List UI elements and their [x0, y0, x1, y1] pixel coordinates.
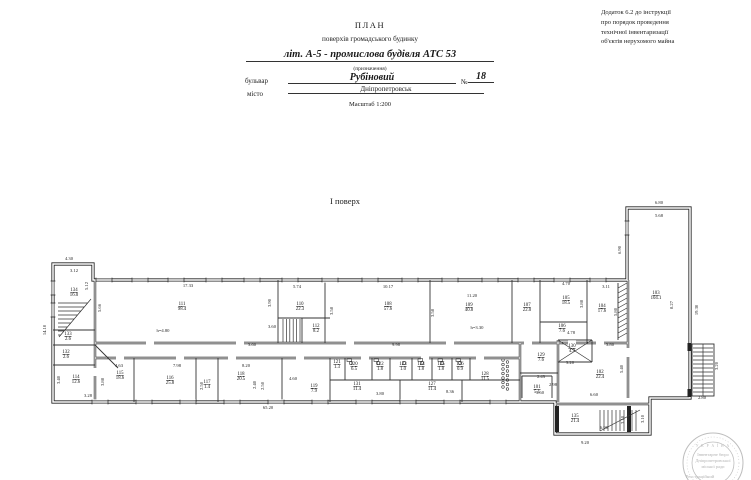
plan-dimension-label: 3.88	[579, 299, 584, 308]
window	[400, 399, 416, 404]
plan-dimension-label: 9.98	[392, 342, 401, 347]
plan-dimension-label: 5.66	[97, 303, 102, 312]
room-number-area-label: 103104.1	[651, 291, 662, 301]
stamp-footer: Реєстраційний	[686, 474, 715, 479]
shaft-circles	[506, 370, 509, 373]
window	[356, 399, 372, 404]
shaft-circles	[502, 377, 505, 380]
room-number-area-label: 13111.4	[353, 382, 362, 392]
window	[96, 277, 112, 282]
plan-dimension-label: 17.33	[183, 283, 194, 288]
window	[282, 277, 298, 282]
plan-dimension-label: 2.43	[537, 374, 546, 379]
plan-dimension-label: 3.80	[376, 391, 385, 396]
window	[624, 221, 629, 235]
room-number-area-label: 10222.4	[596, 370, 605, 380]
plan-dimension-label: 6.60	[590, 392, 599, 397]
door-opening	[476, 355, 484, 361]
plan-dimension-label: 3.58	[430, 308, 435, 317]
shaft-circles	[506, 361, 509, 364]
room-number-area-label: 10417.6	[598, 304, 607, 314]
plan-dimension-label: 3.10	[640, 414, 645, 423]
plan-dimension-label: 14.10	[42, 324, 47, 335]
plan-dimension-label: 4.70	[562, 281, 571, 286]
shaft-circles	[506, 374, 509, 377]
plan-dimension-label: 6.90	[617, 245, 622, 254]
shaft-circles	[506, 388, 509, 391]
room-number-area-label: 10518.5	[562, 296, 571, 306]
window	[268, 399, 284, 404]
window	[322, 277, 338, 282]
room-number-area-label: 1231.0	[399, 362, 407, 372]
shaft-circles	[502, 372, 505, 375]
room-number-area-label: 11022.3	[296, 302, 305, 312]
plan-dimension-label: h=4.80	[157, 328, 171, 333]
plan-dimension-label: 3.12	[70, 268, 79, 273]
window	[490, 399, 506, 404]
window	[402, 277, 418, 282]
shaft-circles	[502, 386, 505, 389]
plan-dimension-label: 5.74	[293, 284, 302, 289]
room-number-area-label: 1128.2	[312, 324, 320, 334]
plan-dimension-label: 8.20	[242, 363, 251, 368]
room-number-area-label: 12711.4	[428, 382, 437, 392]
door-jamb	[688, 389, 692, 397]
room-number-area-label: 1067.6	[558, 324, 566, 334]
plan-dimension-label: 3.58	[329, 306, 334, 315]
staircase-112	[283, 319, 300, 342]
room-number-area-label: 12811.5	[481, 372, 490, 382]
room-number-area-label: 1197.9	[310, 384, 318, 394]
room-number-area-label: 1171.4	[203, 380, 211, 390]
door-jamb	[688, 343, 692, 351]
door-jamb	[555, 406, 559, 432]
window	[132, 277, 148, 282]
room-number-area-label: 11820.5	[237, 372, 246, 382]
door-opening	[596, 340, 604, 346]
exterior-staircase	[693, 344, 713, 396]
plan-dimension-label: 3.28	[84, 393, 93, 398]
window	[244, 277, 260, 282]
vent-hatch-104	[618, 283, 627, 338]
shaft-circles	[502, 368, 505, 371]
stamp-arc-text: У К Р А Ї Н А	[696, 443, 730, 448]
room-number-area-label: 10722.0	[523, 303, 532, 313]
room-number-area-label: 13521.4	[571, 414, 580, 424]
door-opening	[236, 340, 244, 346]
round-stamp: У К Р А Ї Н АІнвентарне бюроДніпропетров…	[683, 433, 743, 480]
door-opening	[524, 340, 532, 346]
room-number-area-label: 1297.6	[537, 353, 545, 363]
plan-dimension-label: 5.40	[619, 364, 624, 373]
plan-dimension-label: 5.68	[655, 213, 664, 218]
plan-dimension-label: 4.60	[289, 376, 298, 381]
plan-dimension-label: 2.98	[549, 382, 558, 387]
document-page: Додаток 6.2 до інструкції про порядок пр…	[0, 0, 751, 480]
stamp-line: міської ради	[701, 464, 725, 469]
window	[224, 399, 240, 404]
window	[92, 399, 108, 404]
plan-dimension-label: 11.20	[467, 293, 478, 298]
staircase-134	[58, 299, 91, 337]
plan-dimension-label: h=3.30	[471, 325, 485, 330]
window	[180, 399, 196, 404]
door-opening	[116, 355, 124, 361]
window	[206, 277, 222, 282]
plan-labels-group: 4.303.125.1214.105.6617.333.903.603.60h=…	[42, 200, 719, 445]
room-number-area-label: 1241.8	[417, 362, 425, 372]
room-number-area-label: 1332.6	[64, 332, 72, 342]
plan-dimension-label: 6.80	[655, 200, 664, 205]
window	[50, 303, 55, 317]
plan-dimension-label: 3.11	[602, 284, 611, 289]
room-number-area-label: 1260.9	[456, 362, 464, 372]
plan-dimension-label: 10.17	[383, 284, 394, 289]
window	[444, 399, 460, 404]
door-opening	[346, 340, 354, 346]
plan-dimension-label: 3.80	[606, 342, 615, 347]
plan-dimension-label: 4.30	[65, 256, 74, 261]
floor-plan-drawing: 4.303.125.1214.105.6617.333.903.603.60h=…	[0, 0, 751, 480]
window	[518, 277, 534, 282]
window	[312, 399, 328, 404]
plan-dimension-label: 3.90	[267, 298, 272, 307]
room-number-area-label: 11198.4	[178, 302, 187, 312]
door-opening	[176, 355, 184, 361]
stamp-line: Дніпропетровської	[695, 458, 731, 463]
plan-dimension-label: 8.27	[669, 300, 674, 309]
window	[362, 277, 378, 282]
plan-dimension-label: 8.36	[446, 389, 455, 394]
plan-dimension-label: 2.40	[252, 380, 257, 389]
shaft-circles	[506, 383, 509, 386]
window	[442, 277, 458, 282]
plan-dimension-label: 5.12	[84, 281, 89, 290]
plan-dimension-label: 65.20	[263, 405, 274, 410]
plan-dimension-label: 19.30	[694, 304, 699, 315]
stamp-line: Інвентарне бюро	[697, 452, 729, 457]
room-number-area-label: 10857.6	[384, 302, 393, 312]
door-opening	[146, 340, 154, 346]
room-number-area-label: 1304.9	[568, 344, 576, 354]
room-number-area-label: 1221.8	[376, 362, 384, 372]
window	[482, 277, 498, 282]
openings-group	[93, 340, 692, 432]
plan-dimension-label: 6.90	[600, 425, 609, 430]
room-number-area-label: 11518.6	[116, 371, 125, 381]
door-opening	[626, 348, 631, 357]
door-opening	[93, 368, 98, 376]
window	[50, 281, 55, 295]
room-number-area-label: 1251.8	[437, 362, 445, 372]
plan-dimension-label: 5.80	[613, 307, 618, 316]
plan-dimension-label: 9.20	[581, 440, 590, 445]
plan-dimension-label: 3.20	[566, 360, 575, 365]
plan-dimension-label: 4.78	[567, 330, 576, 335]
window	[590, 277, 606, 282]
plan-dimension-label: 2.50	[260, 381, 265, 390]
window	[168, 277, 184, 282]
window	[136, 399, 152, 404]
room-number-area-label: 1322.6	[62, 350, 70, 360]
plan-dimension-label: 3.40	[56, 375, 61, 384]
room-number-area-label: 1206.5	[350, 362, 358, 372]
shaft-circles	[502, 381, 505, 384]
plan-dimension-label: 4.63	[115, 363, 124, 368]
shaft-circles	[502, 363, 505, 366]
plan-dimension-label: 7.98	[173, 363, 182, 368]
shaft-circles	[506, 365, 509, 368]
plan-dimension-label: 3.88	[100, 377, 105, 386]
door-jamb	[627, 406, 631, 432]
room-number-area-label: 10940.8	[465, 303, 474, 313]
door-opening	[361, 355, 369, 361]
plan-dimension-label: 3.60	[268, 324, 277, 329]
room-number-area-label: 1211.3	[333, 360, 341, 370]
room-number-area-label: 11412.6	[72, 375, 81, 385]
door-opening	[296, 355, 304, 361]
plan-dimension-label: 3.20	[714, 361, 719, 370]
door-opening	[446, 340, 454, 346]
plan-dimension-label: 3.60	[248, 342, 257, 347]
plan-dimension-label: 2.80	[698, 395, 707, 400]
room-number-area-label: 13416.0	[70, 288, 79, 298]
plan-dimension-label: 3.10	[620, 415, 625, 424]
room-number-area-label: 11625.8	[166, 376, 175, 386]
door-opening	[228, 355, 236, 361]
